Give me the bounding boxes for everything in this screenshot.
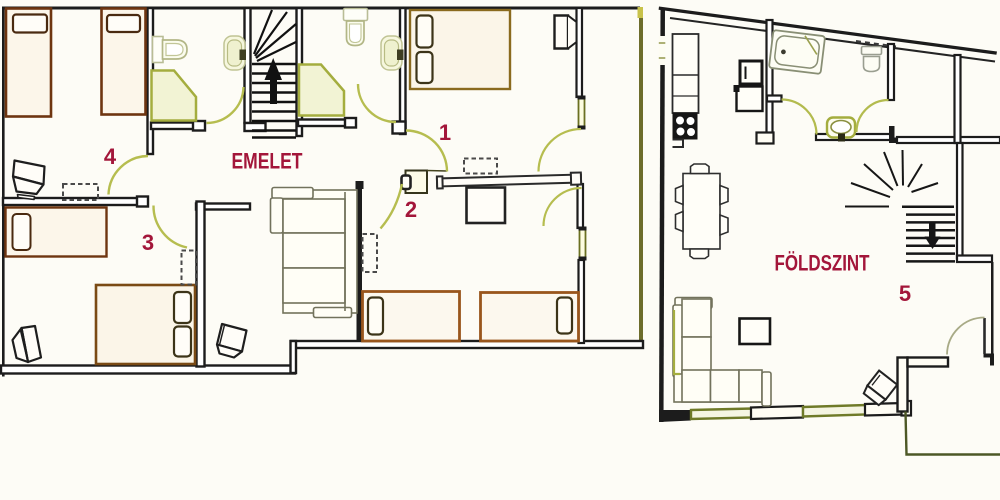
svg-text:4: 4 <box>104 144 117 169</box>
svg-text:3: 3 <box>142 230 154 255</box>
svg-text:EMELET: EMELET <box>232 149 303 174</box>
svg-text:5: 5 <box>899 281 911 306</box>
svg-text:1: 1 <box>439 120 451 145</box>
svg-text:FÖLDSZINT: FÖLDSZINT <box>775 251 870 276</box>
svg-text:2: 2 <box>405 197 417 222</box>
